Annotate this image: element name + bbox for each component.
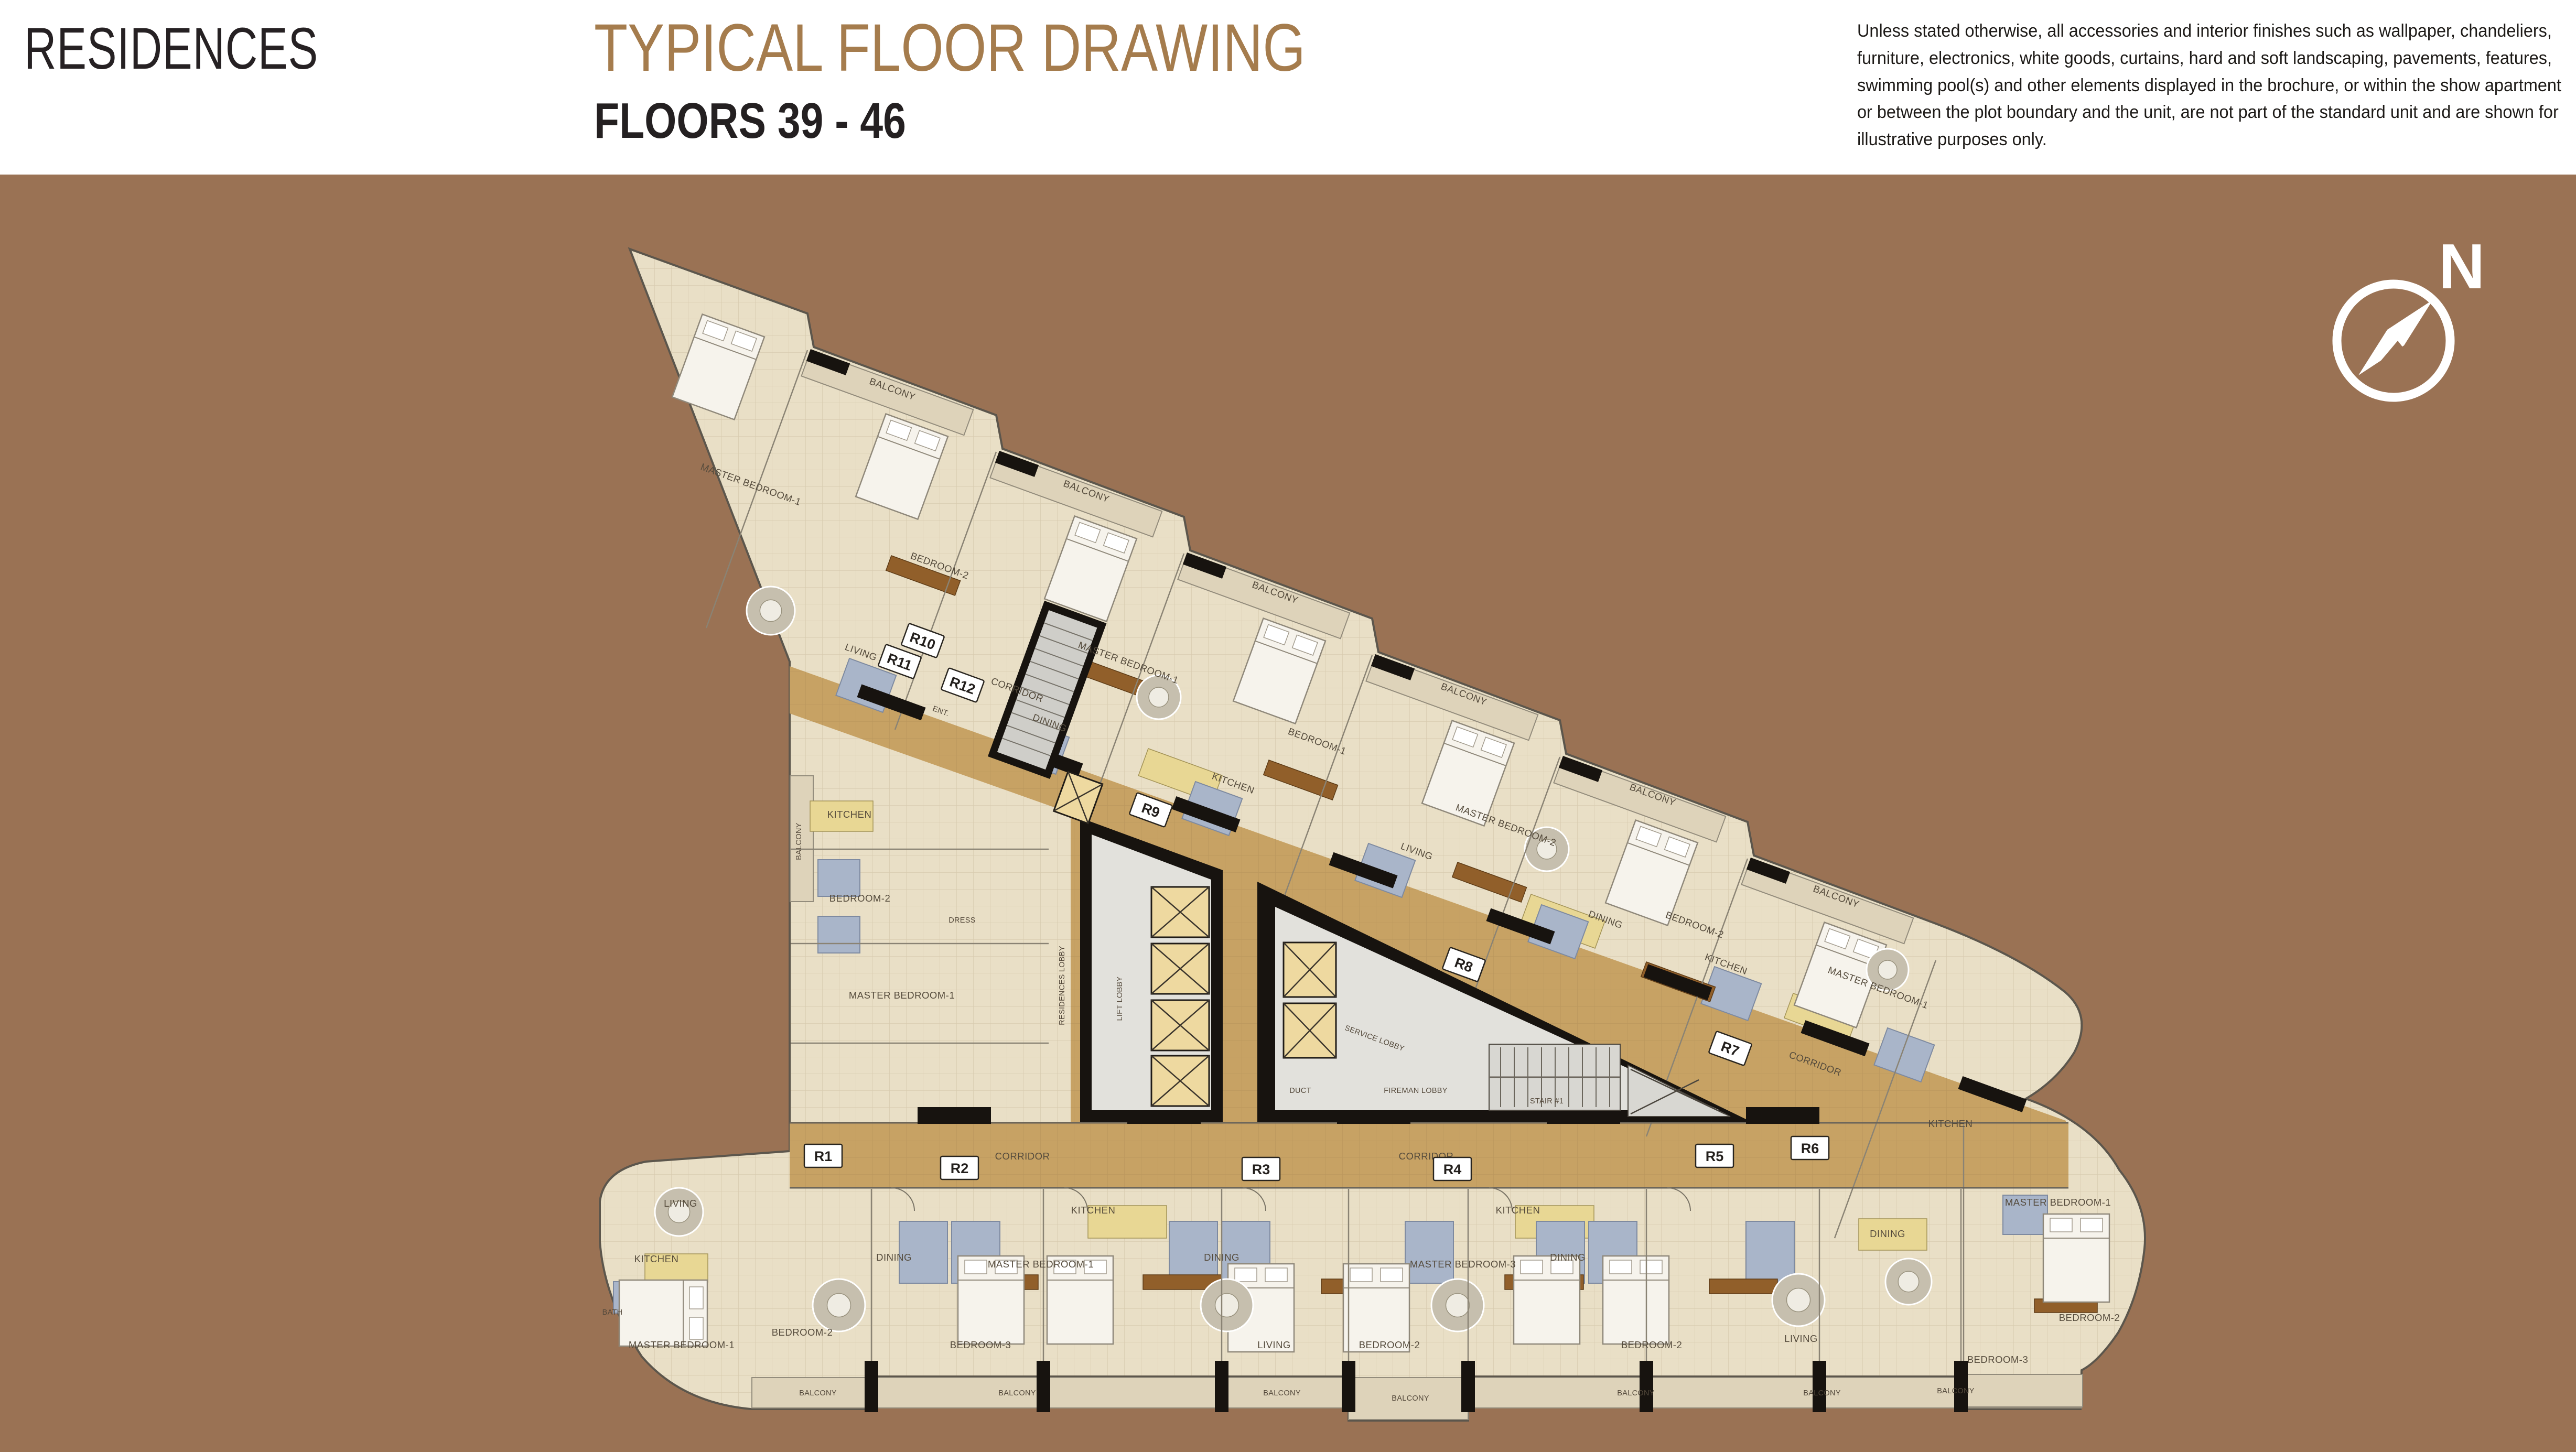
room-label: BATH — [602, 1308, 623, 1317]
bed — [1514, 1256, 1580, 1344]
wardrobe — [1709, 1279, 1777, 1294]
room-label: MASTER BEDROOM-1 — [849, 990, 955, 1001]
room-label: BALCONY — [1803, 1389, 1840, 1397]
core-label: DUCT — [1289, 1087, 1311, 1095]
room-label: BEDROOM-2 — [829, 893, 891, 904]
unit-label-r5: R5 — [1696, 1144, 1733, 1167]
wall-block — [918, 1107, 991, 1124]
bathroom — [818, 916, 860, 953]
room-label: LIVING — [1784, 1333, 1818, 1344]
plan-canvas: BALCONYBALCONYBALCONYBALCONYBALCONYBALCO… — [0, 175, 2576, 1449]
svg-text:R2: R2 — [951, 1161, 969, 1176]
elevator-cell — [1151, 1000, 1209, 1050]
room-label: KITCHEN — [1496, 1205, 1540, 1216]
room-label: DINING — [1550, 1252, 1586, 1263]
room-label: BALCONY — [1937, 1387, 1974, 1395]
unit-label-r6: R6 — [1791, 1136, 1829, 1160]
room-label: BALCONY — [1617, 1389, 1654, 1397]
room-label: BEDROOM-2 — [1359, 1339, 1420, 1350]
room-label: BALCONY — [1263, 1389, 1300, 1397]
compass-north-label: N — [2439, 231, 2485, 302]
bed — [1603, 1256, 1669, 1344]
page-header: RESIDENCES TYPICAL FLOOR DRAWING FLOORS … — [0, 0, 2576, 175]
core-label: LIFT LOBBY — [1116, 977, 1124, 1021]
room-label: KITCHEN — [1071, 1205, 1116, 1216]
room-label: BEDROOM-3 — [1967, 1354, 2029, 1365]
wall-block — [1640, 1361, 1653, 1412]
svg-text:R4: R4 — [1443, 1162, 1462, 1177]
bed — [619, 1280, 707, 1346]
room-label: BALCONY — [799, 1389, 836, 1397]
room-label: LIVING — [664, 1198, 697, 1209]
room-label: DINING — [1204, 1252, 1240, 1263]
floors-subtitle: FLOORS 39 - 46 — [594, 92, 975, 150]
brand-logo: RESIDENCES — [24, 15, 411, 82]
floor-plan: BALCONYBALCONYBALCONYBALCONYBALCONYBALCO… — [551, 199, 2207, 1452]
wall-block — [1813, 1361, 1826, 1412]
room-label: DINING — [876, 1252, 912, 1263]
unit-label-r1: R1 — [804, 1144, 842, 1167]
wall-block — [865, 1361, 878, 1412]
room-label: KITCHEN — [1928, 1118, 1973, 1129]
wall-block — [1746, 1107, 1819, 1124]
room-label: BEDROOM-2 — [1621, 1339, 1683, 1350]
core-label: FIREMAN LOBBY — [1384, 1087, 1448, 1095]
wall-block — [1037, 1361, 1050, 1412]
room-label: BALCONY — [998, 1389, 1036, 1397]
bed — [2043, 1214, 2109, 1302]
elevator-cell — [1284, 942, 1336, 997]
compass: N — [2304, 218, 2530, 417]
bathroom — [1405, 1221, 1453, 1283]
svg-text:R5: R5 — [1706, 1148, 1724, 1164]
bathroom — [818, 860, 860, 896]
room-label: BEDROOM-2 — [772, 1327, 833, 1338]
svg-text:R6: R6 — [1801, 1141, 1819, 1156]
wall-block — [1954, 1361, 1968, 1412]
room-label: LIVING — [1257, 1339, 1291, 1350]
wall-block — [1461, 1361, 1475, 1412]
svg-text:R3: R3 — [1252, 1162, 1270, 1177]
unit-label-r3: R3 — [1242, 1157, 1280, 1180]
elevator-cell — [1284, 1003, 1336, 1058]
room-label: MASTER BEDROOM-1 — [2005, 1197, 2111, 1208]
room-label: CORRIDOR — [995, 1151, 1050, 1162]
room-label: BEDROOM-2 — [2059, 1312, 2120, 1323]
svg-text:R1: R1 — [814, 1148, 833, 1164]
room-label: BALCONY — [1392, 1394, 1429, 1403]
room-label: KITCHEN — [827, 809, 872, 820]
wall-block — [1342, 1361, 1355, 1412]
elevator-cell — [1151, 1056, 1209, 1106]
unit-label-r2: R2 — [941, 1156, 978, 1179]
room-label: BEDROOM-3 — [950, 1339, 1011, 1350]
room-label: BALCONY — [795, 822, 803, 860]
bathroom — [1746, 1221, 1794, 1283]
room-label: MASTER BEDROOM-1 — [988, 1259, 1094, 1270]
balcony — [1962, 1374, 2083, 1407]
unit-label-r4: R4 — [1433, 1157, 1471, 1180]
room-label: DRESS — [949, 916, 975, 925]
page-title: TYPICAL FLOOR DRAWING — [594, 9, 1462, 86]
elevator-cell — [1151, 944, 1209, 994]
core-label: STAIR #1 — [1530, 1097, 1564, 1106]
elevator-cell — [1151, 887, 1209, 937]
room-label: DINING — [1870, 1228, 1905, 1239]
wall-block — [1215, 1361, 1228, 1412]
bed — [1343, 1264, 1409, 1352]
compass-needle-icon — [2358, 300, 2433, 375]
room-label: RESIDENCES LOBBY — [1058, 946, 1066, 1025]
room-label: KITCHEN — [634, 1253, 679, 1264]
room-label: MASTER BEDROOM-1 — [629, 1339, 735, 1350]
room-label: MASTER BEDROOM-3 — [1410, 1259, 1516, 1270]
disclaimer-text: Unless stated otherwise, all accessories… — [1857, 18, 2562, 154]
